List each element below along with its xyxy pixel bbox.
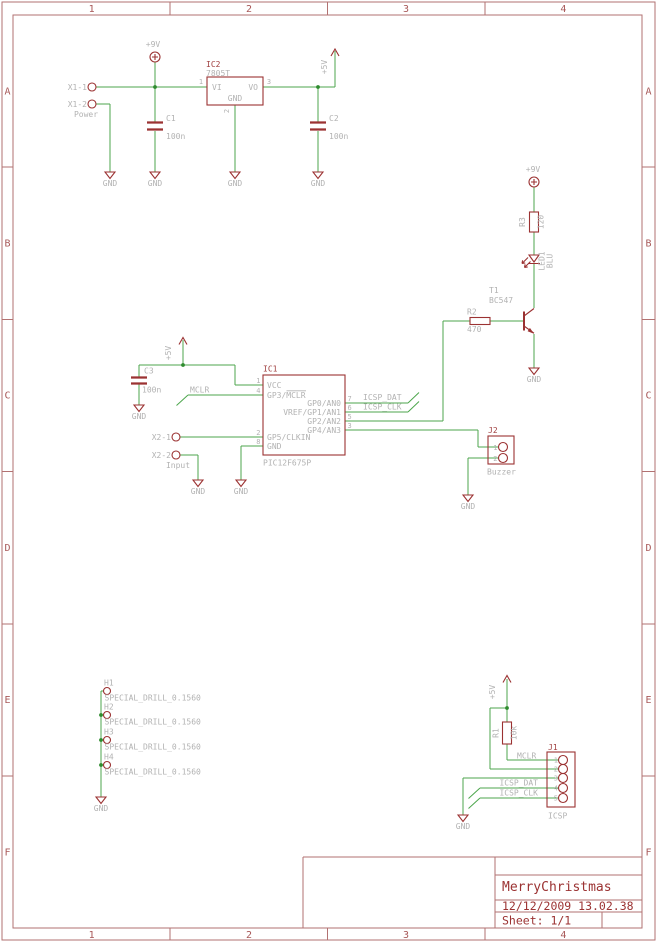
frame-row-label: C [4, 391, 10, 402]
gnd-label: GND [311, 179, 326, 188]
ic2-pin-number: 1 [199, 78, 203, 86]
j1-pin-4 [559, 784, 568, 793]
gnd-label: GND [103, 179, 118, 188]
icsp-section: +5V R1 10k MCLR 1 2 3 4 5 J1 ICSP ICSP_D… [456, 676, 575, 832]
ic1-ref-label: IC1 [263, 365, 278, 374]
gnd-symbols [96, 797, 106, 804]
ic2-ref-label: IC2 [206, 60, 221, 69]
vcc-5v-label: +5V [320, 60, 329, 75]
gnd-symbols [134, 405, 473, 502]
r1-value-label: 10k [510, 726, 519, 741]
x2-1-label: X2-1 [152, 433, 171, 442]
frame-row-label: B [4, 239, 10, 250]
frame-col-label: 4 [560, 4, 566, 15]
title-block: MerryChristmas 12/12/2009 13.02.38 Sheet… [303, 857, 642, 928]
connector-pin-x1-1 [88, 83, 96, 91]
vcc-9v-symbol [529, 177, 539, 187]
frame-col-label: 2 [246, 930, 252, 941]
c3-value-label: 100n [142, 386, 161, 395]
frame-row-label: E [645, 695, 651, 706]
gnd-symbols [105, 172, 323, 179]
j2-pin-2 [499, 454, 508, 463]
led1-value-label: BLU [546, 254, 555, 269]
junction-dot [99, 713, 103, 717]
capacitor-c2-symbol [310, 123, 326, 130]
frame-inner-border [13, 15, 642, 928]
frame-col-label: 3 [403, 930, 409, 941]
r3-value-label: 120 [537, 215, 546, 230]
capacitor-c3-symbol [131, 378, 147, 384]
ic2-value-label: 7805T [206, 69, 230, 78]
j1-pin-3 [559, 774, 568, 783]
j2-value-label: Buzzer [487, 468, 516, 477]
vcc-5v-label: +5V [488, 685, 497, 700]
ic1-pin-name: GP2/AN2 [307, 417, 341, 426]
j1-pin-number: 4 [554, 785, 558, 793]
x1-1-label: X1-1 [68, 83, 87, 92]
j1-pin-number: 2 [554, 766, 558, 774]
ic2-pin-vo-label: VO [248, 83, 258, 92]
schematic-sheet: 1 2 3 4 1 2 3 4 A B C D E F A B C D E F … [0, 0, 657, 945]
mclr-net-label: MCLR [517, 752, 536, 761]
ic1-pin-name: GP0/AN0 [307, 399, 341, 408]
ic1-value-label: PIC12F675P [263, 459, 311, 468]
j2-pin-number: 2 [493, 455, 497, 463]
frame-row-label: D [4, 543, 10, 554]
h2-ref-label: H2 [104, 703, 114, 712]
ic1-pin-name: GP4/AN3 [307, 426, 341, 435]
frame-row-label: B [645, 239, 651, 250]
h1-ref-label: H1 [104, 679, 114, 688]
ic1-pin-number: 1 [256, 377, 260, 385]
j1-pin-1 [559, 756, 568, 765]
gnd-label: GND [461, 502, 476, 511]
gnd-symbols [529, 368, 539, 375]
frame-col-label: 4 [560, 930, 566, 941]
r2-ref-label: R2 [467, 308, 477, 317]
junction-dot [99, 763, 103, 767]
ic2-pin-vi-label: VI [212, 83, 222, 92]
ic1-pin-number: 5 [348, 413, 352, 421]
connector-pin-x2-2 [172, 451, 180, 459]
vcc-9v-label: +9V [146, 40, 161, 49]
ic1-pin-name: GP3/MCLR [267, 391, 306, 400]
ic1-pin-name: GP5/CLKIN [267, 433, 311, 442]
power-supply-section: +9V +5V X1-1 X1-2 Power C1 100n C2 100n … [68, 40, 349, 188]
gnd-label: GND [148, 179, 163, 188]
j1-pin-number: 1 [554, 757, 558, 765]
ic1-pin-number: 3 [348, 422, 352, 430]
gnd-label: GND [527, 375, 542, 384]
frame-row-label: A [4, 87, 10, 98]
j1-pin-5 [559, 794, 568, 803]
r3-ref-label: R3 [518, 217, 527, 227]
r2-value-label: 470 [467, 325, 482, 334]
buzzer-j2-body [488, 436, 514, 464]
j2-ref-label: J2 [488, 426, 498, 435]
gnd-label: GND [456, 822, 471, 831]
frame-row-label: D [645, 543, 651, 554]
c2-value-label: 100n [329, 132, 348, 141]
vcc-9v-symbol [150, 52, 160, 62]
h2-value-label: SPECIAL_DRILL_0.1560 [105, 718, 202, 727]
h3-value-label: SPECIAL_DRILL_0.1560 [105, 743, 202, 752]
resistor-r2-body [470, 318, 490, 325]
h1-value-label: SPECIAL_DRILL_0.1560 [105, 694, 202, 703]
ic2-pin-number: 2 [223, 109, 231, 113]
connector-pin-x2-1 [172, 433, 180, 441]
j1-ref-label: J1 [548, 743, 558, 752]
h3-ref-label: H3 [104, 728, 114, 737]
x1-2-label: X1-2 [68, 100, 87, 109]
frame-row-label: C [645, 391, 651, 402]
icsp-dat-net-label: ICSP_DAT [363, 393, 402, 402]
capacitor-c1-symbol [147, 123, 163, 130]
ic1-pin-number: 7 [348, 395, 352, 403]
frame-col-label: 3 [403, 4, 409, 15]
mclr-net-label: MCLR [190, 386, 209, 395]
title-block-sheet: Sheet: 1/1 [502, 914, 571, 928]
junction-dot [505, 706, 509, 710]
icsp-clk-net-label: ICSP_CLK [499, 789, 538, 798]
mounting-holes-section: H1 SPECIAL_DRILL_0.1560 H2 SPECIAL_DRILL… [94, 679, 201, 814]
c1-ref-label: C1 [166, 114, 176, 123]
frame-col-label: 2 [246, 4, 252, 15]
x2-2-label: X2-2 [152, 451, 171, 460]
c1-value-label: 100n [166, 132, 185, 141]
vcc-5v-label: +5V [164, 346, 173, 361]
t1-value-label: BC547 [489, 296, 513, 305]
mcu-section: +5V C3 100n MCLR X2-1 X2-2 Input IC1 PIC… [131, 338, 516, 512]
frame-row-label: A [645, 87, 651, 98]
icsp-clk-net-label: ICSP_CLK [363, 403, 402, 412]
t1-ref-label: T1 [489, 286, 499, 295]
junction-dot [99, 738, 103, 742]
j2-pin-1 [499, 443, 508, 452]
vcc-9v-label: +9V [526, 165, 541, 174]
x1-value-label: Power [74, 110, 98, 119]
frame-row-label: F [645, 848, 651, 859]
ic1-pin-name: VCC [267, 381, 282, 390]
ic1-pin-number: 6 [348, 404, 352, 412]
icsp-dat-net-label: ICSP_DAT [499, 779, 538, 788]
frame-row-label: F [4, 848, 10, 859]
junction-dot [316, 85, 320, 89]
x2-value-label: Input [166, 461, 190, 470]
transistor-t1-symbol [524, 309, 534, 334]
gnd-label: GND [234, 487, 249, 496]
h4-ref-label: H4 [104, 753, 114, 762]
ic1-pin-number: 8 [256, 438, 260, 446]
frame-col-label: 1 [89, 930, 95, 941]
c2-ref-label: C2 [329, 114, 339, 123]
ic1-pin-number: 2 [256, 429, 260, 437]
led-driver-section: +9V R3 120 LED1 BLU T1 BC547 R2 470 GND [443, 165, 555, 421]
title-block-timestamp: 12/12/2009 13.02.38 [502, 899, 634, 913]
junction-dot [153, 85, 157, 89]
gnd-label: GND [132, 412, 147, 421]
frame-row-ticks [2, 167, 655, 776]
connector-pin-x1-2 [88, 100, 96, 108]
ic2-pin-number: 3 [267, 78, 271, 86]
h4-value-label: SPECIAL_DRILL_0.1560 [105, 768, 202, 777]
gnd-label: GND [94, 804, 109, 813]
gnd-symbols [458, 815, 468, 822]
j1-pin-2 [559, 765, 568, 774]
frame-row-label: E [4, 695, 10, 706]
junction-dot [181, 363, 185, 367]
j2-pin-number: 1 [493, 444, 497, 452]
r1-ref-label: R1 [492, 728, 501, 738]
frame-col-label: 1 [89, 4, 95, 15]
ic2-pin-gnd-label: GND [228, 94, 243, 103]
title-block-project-title: MerryChristmas [502, 880, 612, 895]
j1-pin-number: 3 [554, 775, 558, 783]
ic1-pin-name: VREF/GP1/AN1 [283, 408, 341, 417]
j1-pin-number: 5 [554, 795, 558, 803]
ic1-pin-number: 4 [256, 387, 260, 395]
frame-column-ticks [170, 2, 485, 940]
c3-ref-label: C3 [144, 367, 154, 376]
gnd-label: GND [191, 487, 206, 496]
ic1-pin-name: GND [267, 442, 282, 451]
j1-value-label: ICSP [548, 812, 567, 821]
gnd-label: GND [228, 179, 243, 188]
